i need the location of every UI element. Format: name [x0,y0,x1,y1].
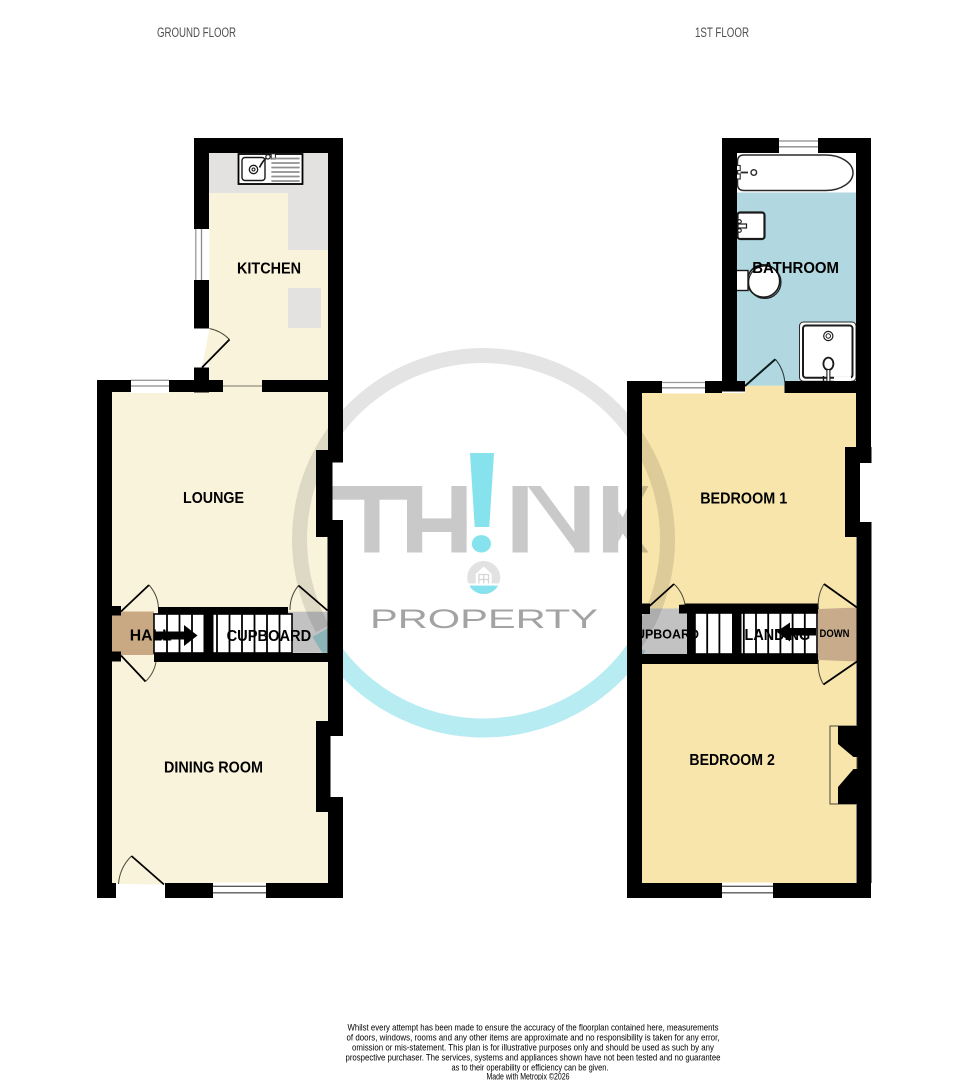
svg-text:CUPBOARD: CUPBOARD [227,628,312,645]
svg-text:BEDROOM 1: BEDROOM 1 [700,491,787,508]
svg-text:DOWN: DOWN [820,628,850,640]
svg-text:KITCHEN: KITCHEN [237,261,301,278]
svg-text:GROUND FLOOR: GROUND FLOOR [157,25,236,40]
svg-text:PROPERTY: PROPERTY [370,604,598,634]
svg-text:LOUNGE: LOUNGE [183,490,244,507]
svg-text:Whilst every attempt has been: Whilst every attempt has been made to en… [348,1023,720,1033]
svg-text:BEDROOM 2: BEDROOM 2 [689,752,774,769]
svg-text:prospective purchaser. The ser: prospective purchaser. The services, sys… [346,1052,721,1062]
svg-text:DINING ROOM: DINING ROOM [164,760,263,777]
svg-text:Made with Metropix ©2026: Made with Metropix ©2026 [487,1072,570,1080]
svg-text:omission or mis-statement. Thi: omission or mis-statement. This plan is … [352,1042,715,1052]
svg-text:of doors, windows, rooms and a: of doors, windows, rooms and any other i… [347,1033,720,1043]
svg-text:BATHROOM: BATHROOM [752,260,839,277]
svg-text:1ST FLOOR: 1ST FLOOR [695,25,749,40]
